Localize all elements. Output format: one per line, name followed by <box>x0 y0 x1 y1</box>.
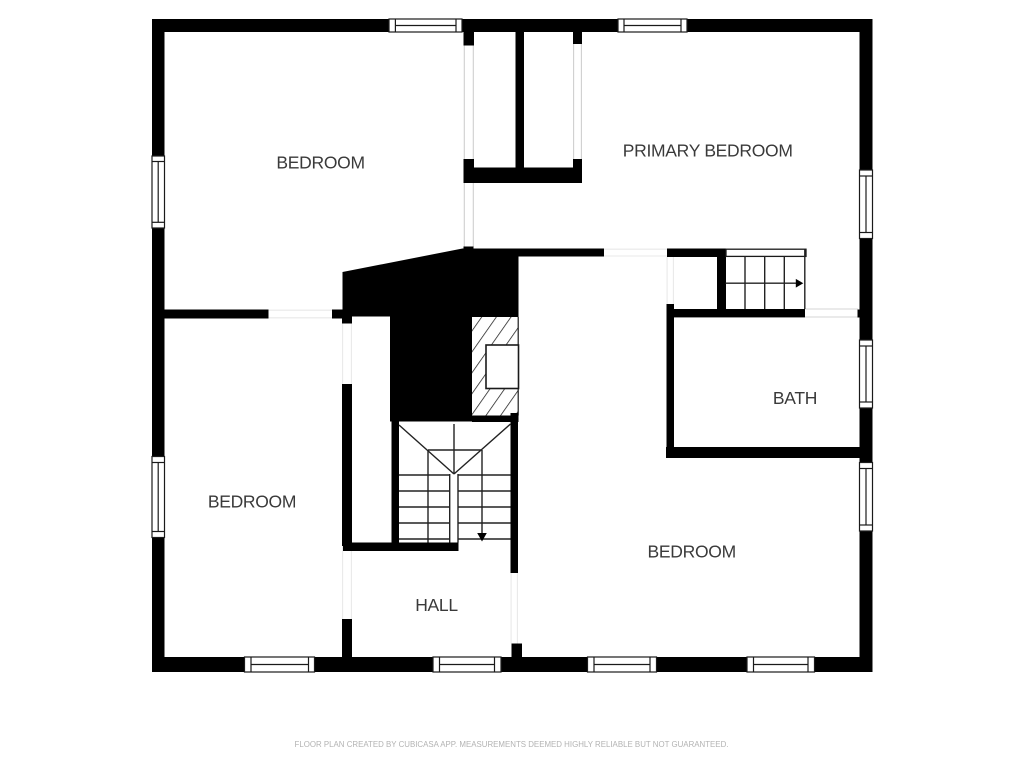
svg-text:BEDROOM: BEDROOM <box>648 541 736 561</box>
svg-text:BATH: BATH <box>773 388 817 408</box>
svg-text:BEDROOM: BEDROOM <box>208 492 296 512</box>
svg-text:HALL: HALL <box>415 595 458 615</box>
svg-text:PRIMARY BEDROOM: PRIMARY BEDROOM <box>623 141 793 161</box>
svg-text:BEDROOM: BEDROOM <box>276 153 364 173</box>
svg-text:FLOOR PLAN CREATED BY CUBICASA: FLOOR PLAN CREATED BY CUBICASA APP. MEAS… <box>295 740 729 749</box>
